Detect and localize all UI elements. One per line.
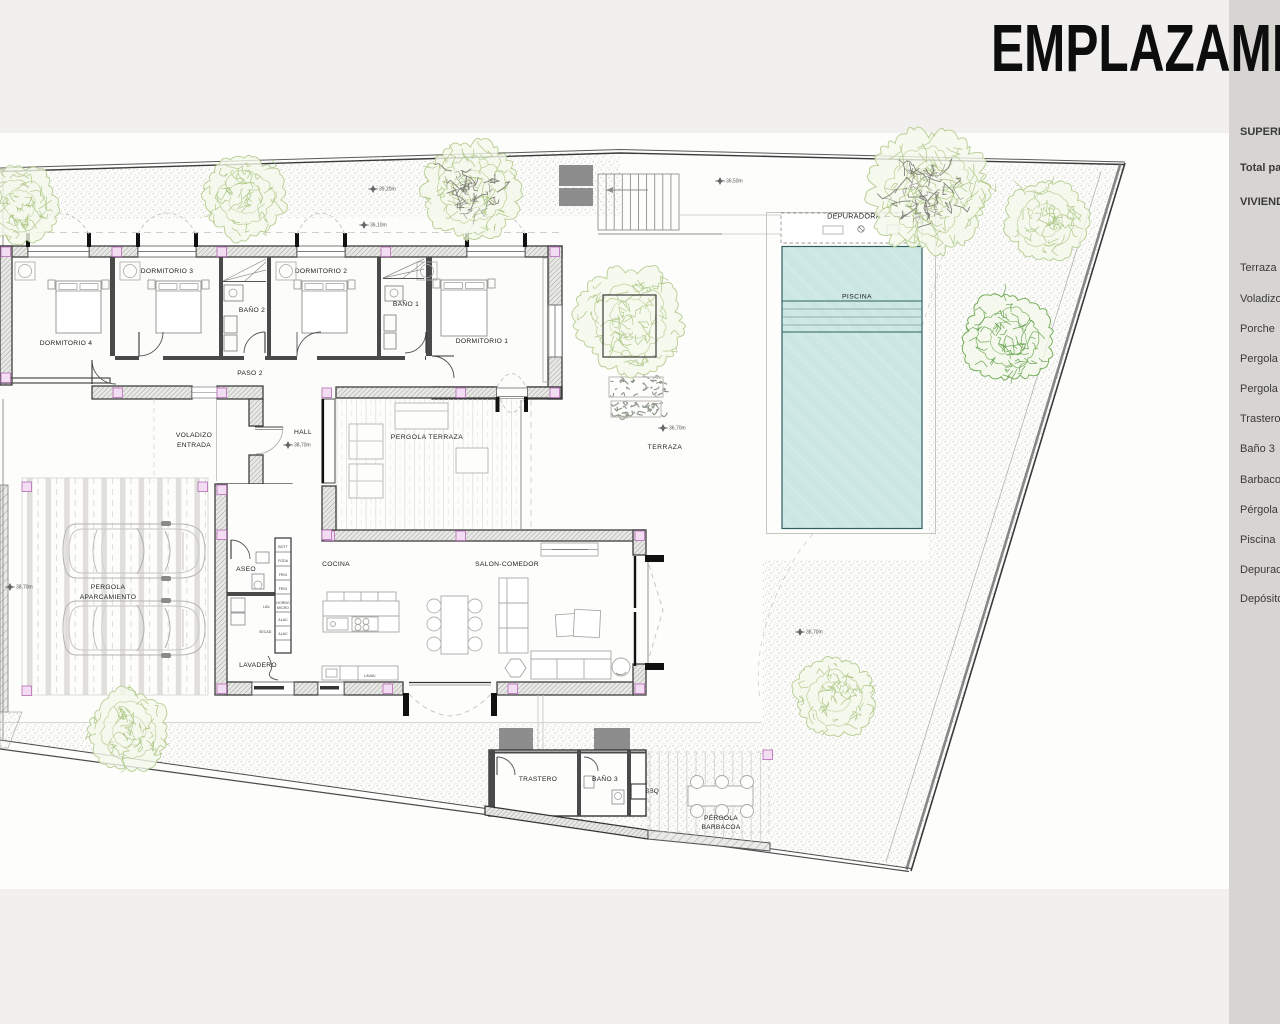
svg-text:ALAC: ALAC bbox=[278, 618, 288, 622]
svg-text:EMPLAZAMIENTO: EMPLAZAMIENTO bbox=[991, 12, 1280, 86]
svg-text:PERGOLA: PERGOLA bbox=[91, 584, 126, 591]
svg-text:PISCINA: PISCINA bbox=[842, 294, 872, 301]
svg-text:PÉRGOLA: PÉRGOLA bbox=[704, 813, 738, 822]
svg-text:ENTRADA: ENTRADA bbox=[177, 442, 211, 449]
svg-text:Pérgola barb.: Pérgola barb. bbox=[1240, 504, 1280, 516]
svg-text:38,70m: 38,70m bbox=[294, 443, 311, 449]
svg-text:FGDA: FGDA bbox=[278, 559, 289, 563]
svg-text:39,20m: 39,20m bbox=[379, 187, 396, 193]
svg-text:Pergola terraza: Pergola terraza bbox=[1240, 383, 1280, 395]
svg-text:Depuradora: Depuradora bbox=[1240, 564, 1280, 576]
svg-text:Barbacoa: Barbacoa bbox=[1240, 474, 1280, 486]
svg-text:LAVAV.: LAVAV. bbox=[364, 674, 376, 678]
svg-text:BAÑO 1: BAÑO 1 bbox=[393, 299, 419, 308]
svg-text:TRASTERO: TRASTERO bbox=[519, 776, 557, 783]
svg-text:BAÑO 3: BAÑO 3 bbox=[592, 774, 618, 783]
svg-text:ASEO: ASEO bbox=[236, 566, 256, 573]
svg-text:DORMITORIO 4: DORMITORIO 4 bbox=[40, 340, 93, 347]
svg-text:36,10m: 36,10m bbox=[370, 223, 387, 229]
svg-text:HORNO: HORNO bbox=[276, 601, 290, 605]
svg-text:FRIG: FRIG bbox=[279, 573, 288, 577]
svg-text:38,70m: 38,70m bbox=[16, 585, 33, 591]
svg-text:MICRO: MICRO bbox=[277, 606, 289, 610]
svg-text:COCINA: COCINA bbox=[322, 561, 350, 568]
svg-text:36,50m: 36,50m bbox=[726, 179, 743, 185]
svg-text:DORMITORIO 2: DORMITORIO 2 bbox=[295, 268, 348, 275]
svg-text:VIVIENDA: VIVIENDA bbox=[1240, 196, 1280, 208]
svg-text:Pergola aparc.: Pergola aparc. bbox=[1240, 353, 1280, 365]
svg-text:BARBACOA: BARBACOA bbox=[701, 824, 740, 831]
svg-text:DORMITORIO 1: DORMITORIO 1 bbox=[456, 338, 509, 345]
svg-text:PASO 2: PASO 2 bbox=[237, 370, 262, 377]
svg-text:DEPURADORA: DEPURADORA bbox=[827, 212, 881, 221]
svg-text:Porche: Porche bbox=[1240, 323, 1275, 335]
svg-text:BBQ: BBQ bbox=[645, 788, 659, 795]
svg-text:LAV.: LAV. bbox=[263, 605, 270, 609]
svg-text:VOLADIZO: VOLADIZO bbox=[176, 432, 212, 439]
svg-text:Voladizo entrada: Voladizo entrada bbox=[1240, 293, 1280, 305]
svg-text:SUPERFICIES: SUPERFICIES bbox=[1240, 126, 1280, 138]
svg-text:SALON-COMEDOR: SALON-COMEDOR bbox=[475, 561, 539, 568]
svg-text:36,70m: 36,70m bbox=[669, 426, 686, 432]
svg-text:BOTT: BOTT bbox=[278, 545, 288, 549]
svg-text:Total parcela: Total parcela bbox=[1240, 162, 1280, 174]
svg-text:TERRAZA: TERRAZA bbox=[648, 444, 683, 451]
svg-text:Piscina: Piscina bbox=[1240, 534, 1276, 546]
svg-text:APARCAMIENTO: APARCAMIENTO bbox=[80, 594, 137, 601]
svg-text:PERGOLA TERRAZA: PERGOLA TERRAZA bbox=[391, 434, 463, 441]
svg-text:36,70m: 36,70m bbox=[806, 630, 823, 636]
svg-text:FRIG: FRIG bbox=[279, 587, 288, 591]
svg-text:Depósito: Depósito bbox=[1240, 593, 1280, 605]
svg-text:SECAD: SECAD bbox=[259, 630, 272, 634]
svg-text:HALL: HALL bbox=[294, 429, 312, 436]
svg-text:ALAC: ALAC bbox=[278, 632, 288, 636]
svg-text:Baño 3: Baño 3 bbox=[1240, 443, 1275, 455]
svg-text:Trastero: Trastero bbox=[1240, 413, 1280, 425]
svg-text:BAÑO 2: BAÑO 2 bbox=[239, 305, 265, 314]
svg-text:Terraza: Terraza bbox=[1240, 262, 1278, 274]
svg-text:DORMITORIO 3: DORMITORIO 3 bbox=[141, 268, 194, 275]
